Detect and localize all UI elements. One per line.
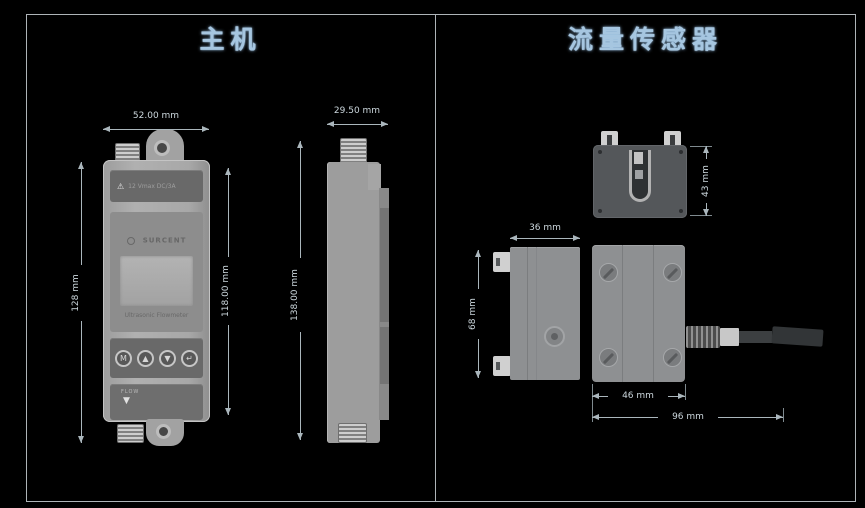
dim-ext	[783, 408, 784, 422]
dim-sensor-depth-label: 36 mm	[505, 222, 585, 234]
product-label: Ultrasonic Flowmeter	[110, 312, 203, 319]
enter-button: ↵	[181, 350, 198, 367]
screw-dot-icon	[598, 209, 602, 213]
flow-arrow-icon: ▼	[123, 396, 130, 406]
dim-sensor-clamp-height-label: 43 mm	[700, 159, 712, 203]
terminal-block-bottom-icon	[117, 424, 144, 443]
dim-main-depth-line	[327, 124, 388, 125]
dim-sensor-height-label: 68 mm	[467, 289, 479, 339]
sensor-emblem-dot	[551, 333, 558, 340]
sensor-clip-icon	[493, 356, 511, 376]
dim-main-side-height-label: 138.00 mm	[289, 258, 301, 332]
dim-main-width-label: 52.00 mm	[106, 110, 206, 122]
dim-main-height-outer-label: 128 mm	[70, 265, 82, 321]
up-button: ▲	[137, 350, 154, 367]
body-seam	[527, 247, 528, 380]
down-button: ▼	[159, 350, 176, 367]
brand-row: SURCENT	[110, 230, 203, 249]
warning-label-strip: ⚠ 12 Vmax DC/3A	[110, 170, 203, 202]
clamp-slot-latch	[634, 152, 643, 164]
dim-main-height-inner-label: 118.00 mm	[220, 257, 232, 325]
dim-ext	[685, 384, 686, 400]
warning-icon: ⚠	[117, 182, 124, 191]
side-inset-lower	[380, 327, 389, 384]
dim-sensor-overall-width-label: 96 mm	[658, 411, 718, 423]
lcd-screen	[120, 256, 193, 306]
cable	[739, 331, 772, 343]
clip-slot	[496, 362, 500, 370]
body-seam	[622, 245, 623, 382]
body-seam	[653, 245, 654, 382]
side-terminal-top-icon	[340, 138, 367, 164]
mounting-hole-bottom-icon	[156, 424, 171, 439]
keypad-strip: M ▲ ▼ ↵	[110, 338, 203, 378]
side-inset-upper	[380, 208, 389, 322]
sensor-clip-icon	[493, 252, 511, 272]
screw-icon	[599, 348, 618, 367]
dim-main-width-line	[103, 129, 209, 130]
screw-icon	[663, 263, 682, 282]
dim-sensor-depth-line	[510, 238, 580, 239]
flow-label: FLOW	[121, 389, 139, 395]
mounting-hole-top-icon	[154, 140, 170, 156]
brand-logo-icon	[127, 237, 135, 245]
screw-icon	[663, 348, 682, 367]
side-terminal-bottom-icon	[338, 423, 367, 443]
screw-dot-icon	[598, 150, 602, 154]
clip-slot	[670, 135, 675, 145]
body-seam	[536, 247, 537, 380]
dimension-drawing-page: 主机 流量传感器 52.00 mm ⚠ 12 Vmax DC/3A SURCEN…	[0, 0, 865, 508]
warning-text: 12 Vmax DC/3A	[128, 183, 175, 190]
brand-name: SURCENT	[143, 237, 187, 245]
side-step	[368, 164, 381, 190]
clip-slot	[496, 258, 500, 266]
clip-slot	[607, 135, 612, 145]
left-panel-title: 主机	[26, 20, 435, 56]
main-unit-side-body	[327, 162, 380, 443]
cable-connector-sleeve	[720, 328, 739, 346]
screw-dot-icon	[679, 209, 683, 213]
clamp-slot-inner	[635, 170, 643, 179]
dim-sensor-width-label: 46 mm	[608, 390, 668, 402]
screw-dot-icon	[679, 150, 683, 154]
cable-connector-icon	[686, 326, 720, 348]
sensor-side-view-body	[510, 247, 580, 380]
cable-end	[771, 326, 823, 347]
screw-icon	[599, 263, 618, 282]
menu-button: M	[115, 350, 132, 367]
dim-main-depth-label: 29.50 mm	[317, 105, 397, 117]
column-divider	[435, 14, 436, 502]
right-panel-title: 流量传感器	[435, 20, 856, 56]
